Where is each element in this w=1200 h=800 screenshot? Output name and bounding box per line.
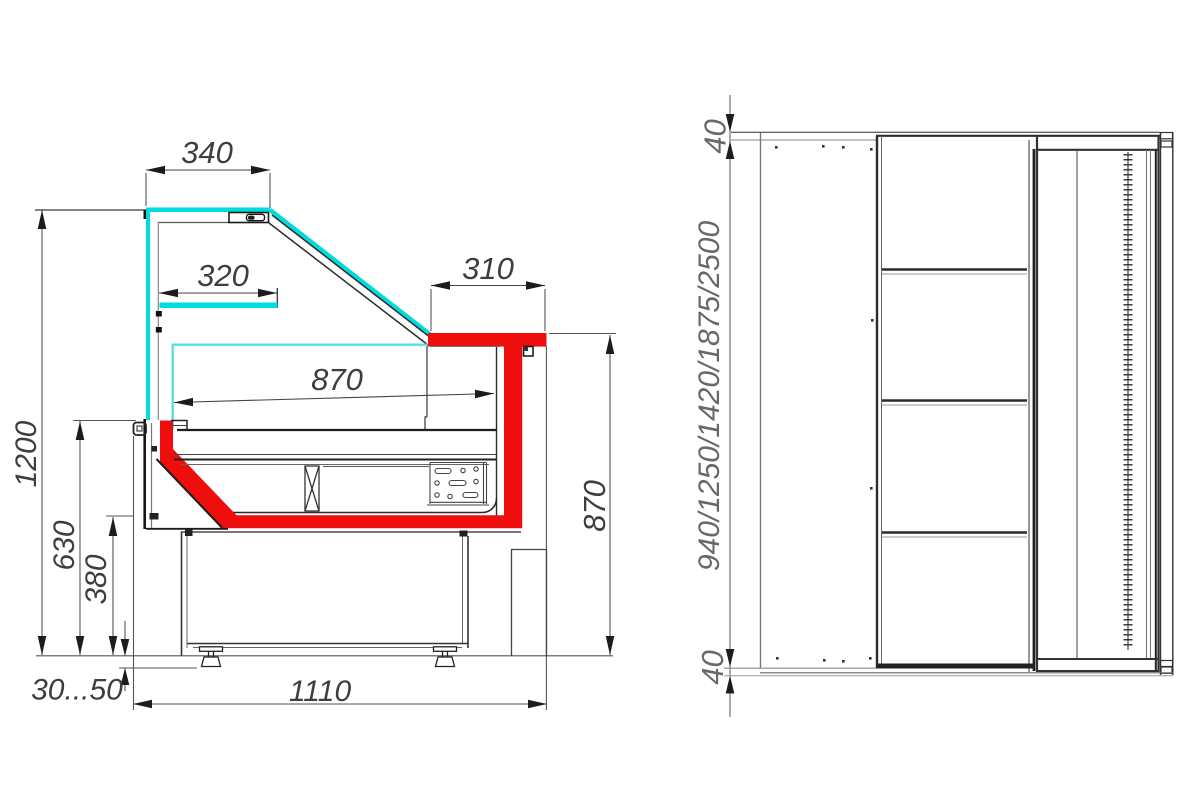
svg-text:380: 380 bbox=[80, 554, 113, 604]
svg-text:630: 630 bbox=[48, 520, 81, 570]
svg-text:320: 320 bbox=[197, 258, 249, 293]
svg-text:1200: 1200 bbox=[10, 420, 43, 487]
svg-text:340: 340 bbox=[181, 135, 233, 170]
svg-text:870: 870 bbox=[311, 362, 363, 397]
svg-text:870: 870 bbox=[577, 480, 612, 532]
svg-text:310: 310 bbox=[462, 251, 514, 286]
svg-text:40: 40 bbox=[695, 650, 730, 684]
svg-text:40: 40 bbox=[698, 119, 733, 153]
svg-text:940/1250/1420/1875/2500: 940/1250/1420/1875/2500 bbox=[693, 221, 726, 572]
svg-text:1110: 1110 bbox=[289, 675, 352, 708]
svg-text:30...50: 30...50 bbox=[31, 674, 123, 707]
